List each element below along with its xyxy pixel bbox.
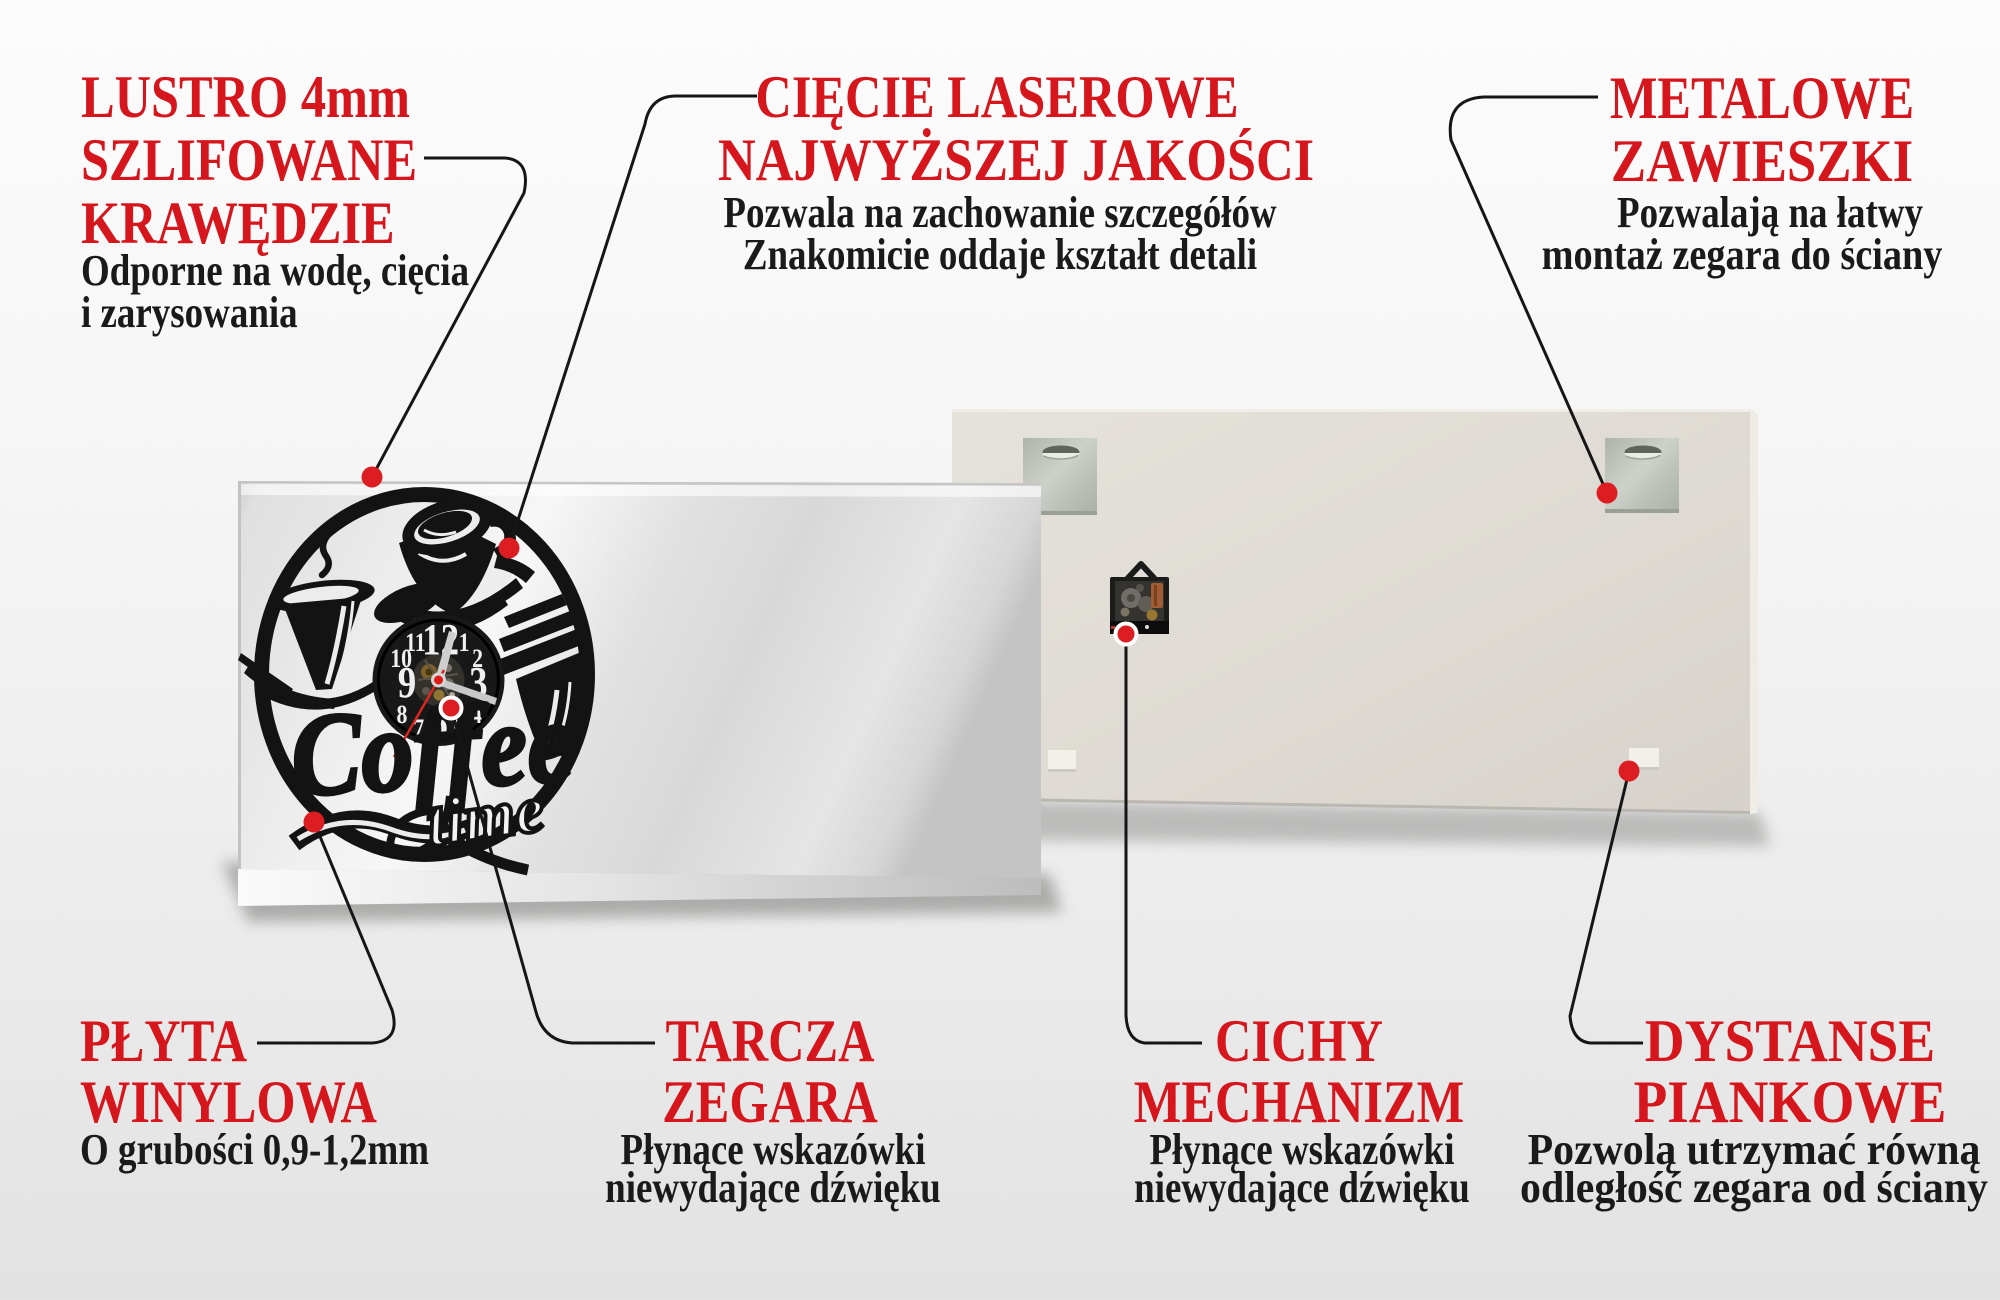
svg-text:1: 1 [459,629,470,657]
svg-text:11: 11 [405,629,426,657]
